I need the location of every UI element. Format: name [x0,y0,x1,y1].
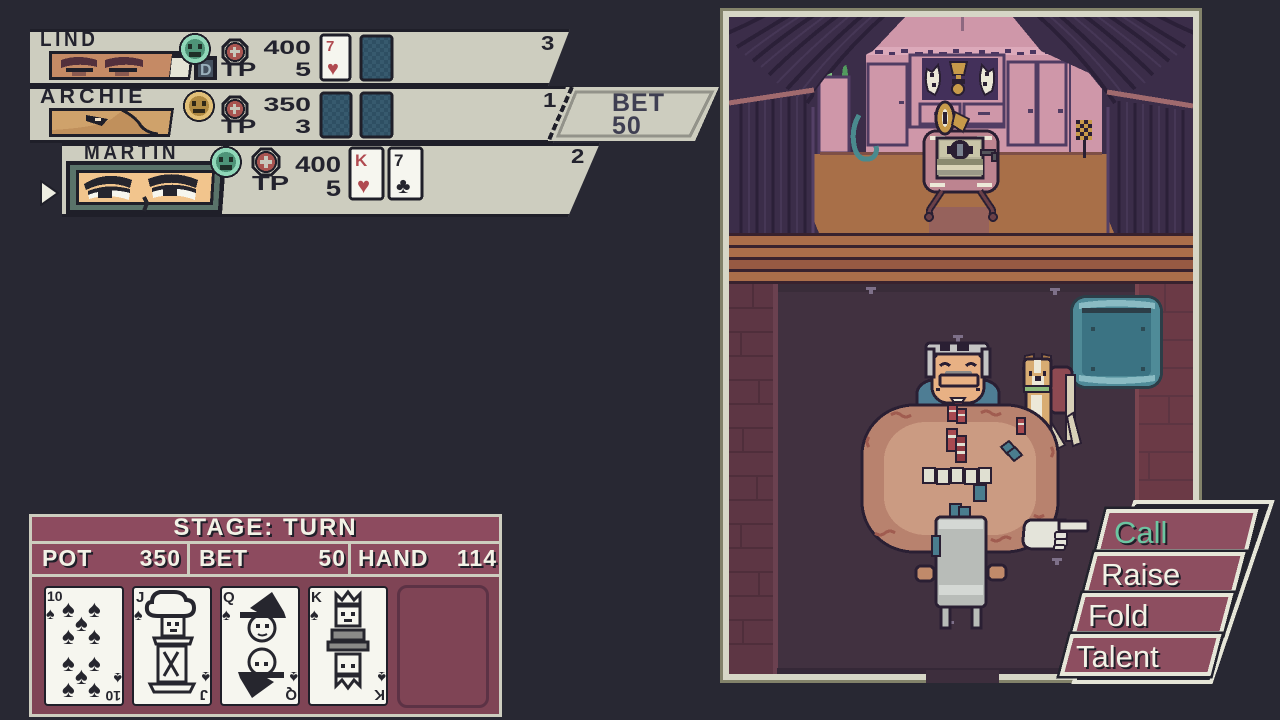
svg-text:♠: ♠ [62,676,75,703]
svg-text:♠: ♠ [62,623,75,650]
svg-text:K: K [311,589,322,606]
svg-text:♣: ♣ [396,173,410,198]
svg-text:♠: ♠ [75,663,88,690]
svg-text:♠: ♠ [88,596,101,623]
svg-text:7: 7 [326,38,334,55]
svg-text:D: D [200,62,212,79]
svg-text:♠: ♠ [113,669,122,686]
svg-text:♠: ♠ [88,650,101,677]
svg-text:♠: ♠ [201,668,210,685]
svg-text:♠: ♠ [62,650,75,677]
svg-text:♠: ♠ [75,610,88,637]
svg-text:7: 7 [394,151,403,170]
svg-text:♠: ♠ [134,607,143,624]
svg-text:Q: Q [223,589,235,606]
svg-text:♠: ♠ [88,623,101,650]
svg-text:K: K [355,151,368,170]
svg-text:♠: ♠ [289,668,298,685]
svg-text:♥: ♥ [327,58,339,80]
svg-text:K: K [374,686,385,703]
svg-text:10: 10 [105,688,121,704]
svg-text:♥: ♥ [357,173,370,198]
svg-text:10: 10 [47,588,63,604]
svg-text:♠: ♠ [62,596,75,623]
svg-text:J: J [136,589,144,606]
svg-text:J: J [200,686,208,703]
svg-text:♠: ♠ [310,607,319,624]
svg-text:♠: ♠ [377,668,386,685]
svg-text:♠: ♠ [46,606,55,623]
svg-text:Q: Q [285,686,297,703]
svg-text:♠: ♠ [88,676,101,703]
svg-text:♠: ♠ [222,607,231,624]
